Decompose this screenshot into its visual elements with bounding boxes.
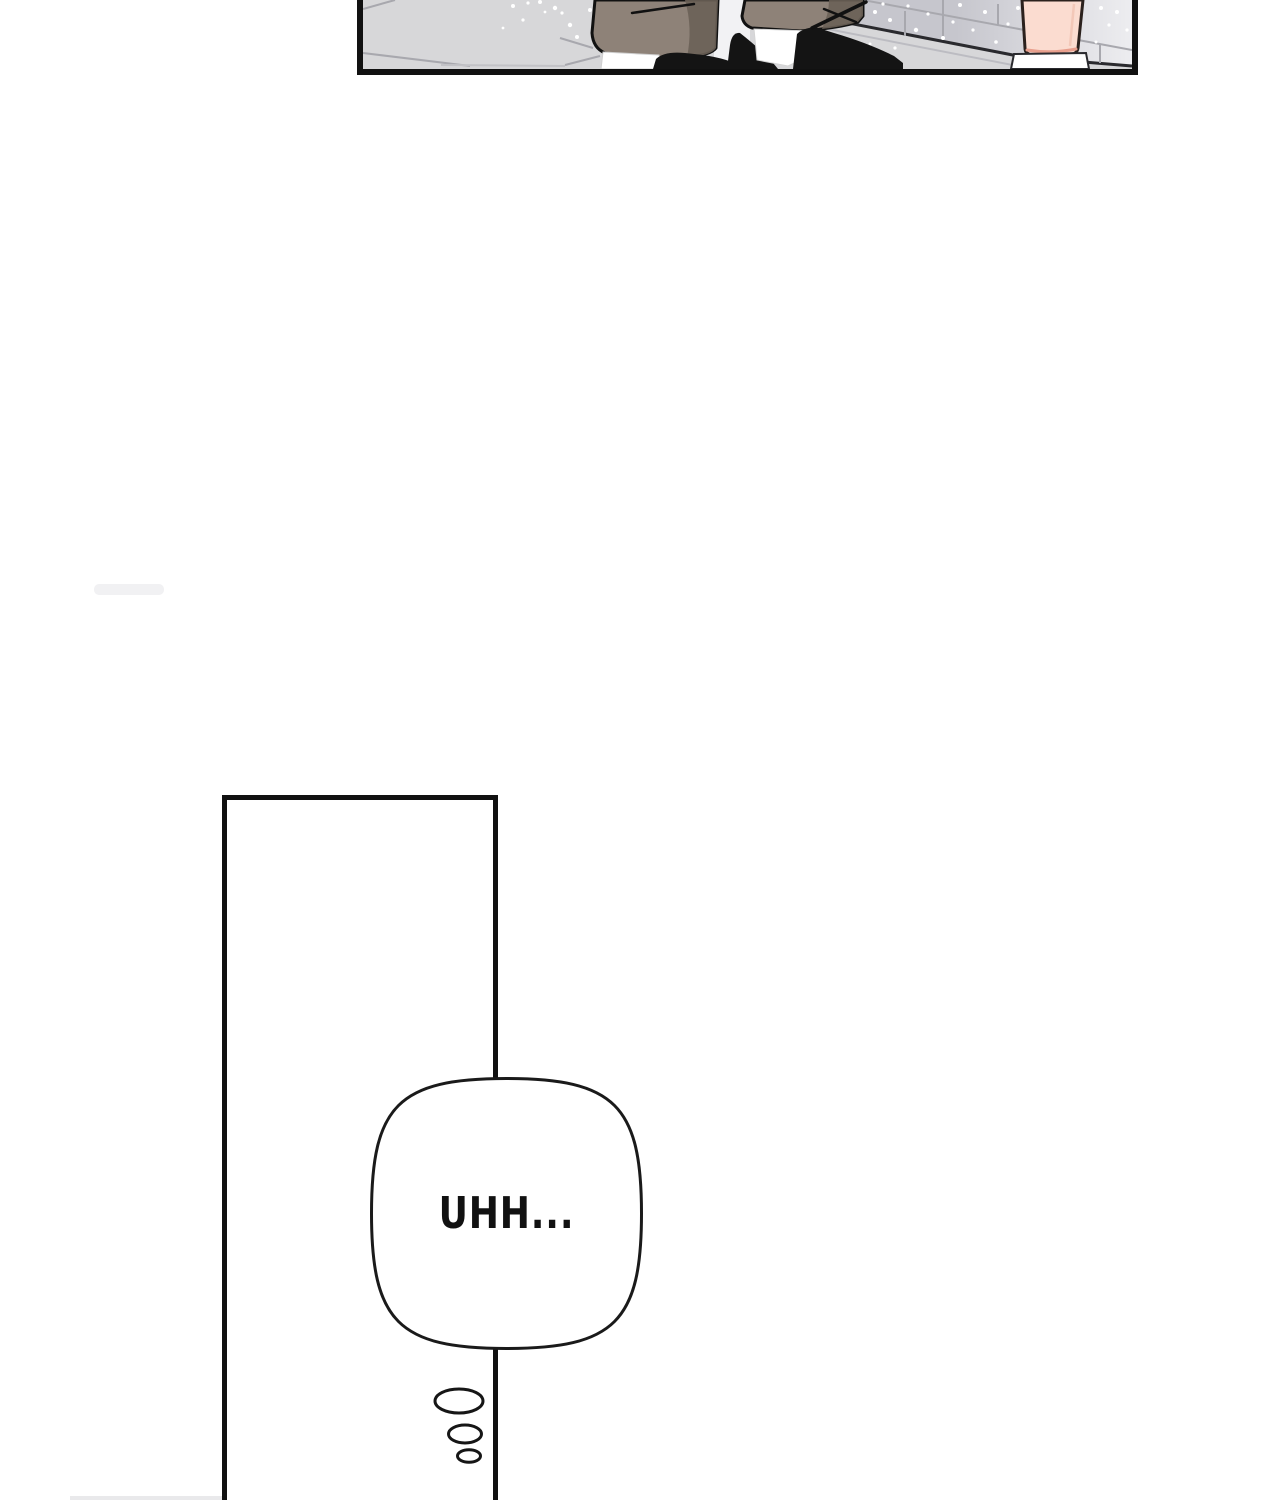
left-trouser-leg (592, 0, 718, 58)
panel-top-artwork (363, 0, 1132, 69)
trail-ellipse-large (435, 1389, 483, 1413)
trail-ellipse-small (458, 1450, 481, 1463)
bare-leg (1022, 0, 1083, 55)
center-trouser-leg (742, 0, 863, 31)
thought-trail (430, 1386, 494, 1468)
speech-bubble-text: UHH... (393, 1075, 620, 1352)
comic-page: UHH... (0, 0, 1280, 1500)
trail-ellipse-medium (449, 1425, 482, 1443)
left-sock (601, 52, 661, 69)
artifact-smudge-mid (94, 584, 164, 595)
bare-leg-sock (1011, 53, 1089, 69)
panel-top-scene (357, 0, 1138, 75)
